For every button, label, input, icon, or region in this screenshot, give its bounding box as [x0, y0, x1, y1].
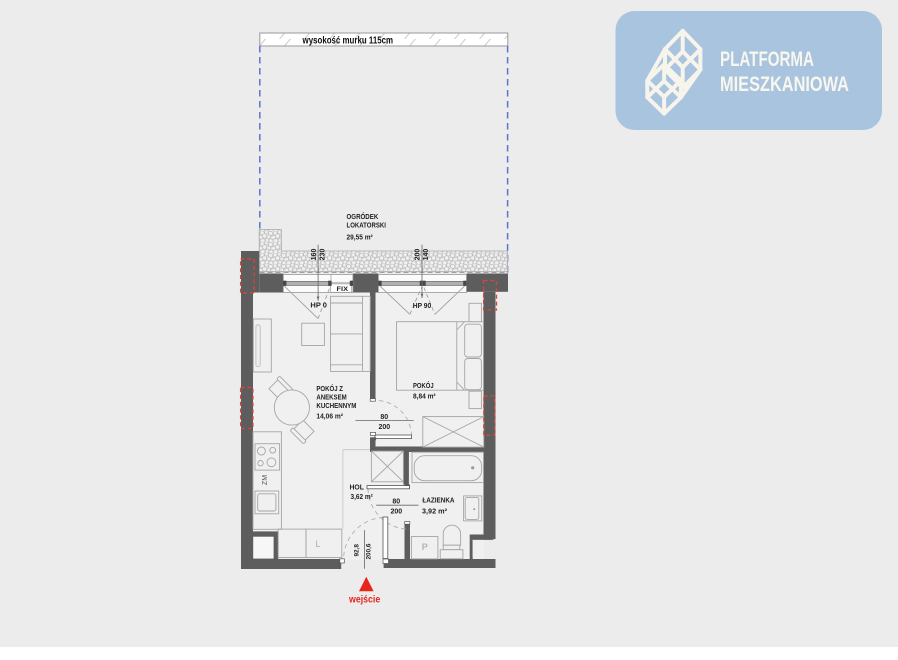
svg-text:29,55 m²: 29,55 m²	[347, 233, 374, 242]
svg-text:14,06 m²: 14,06 m²	[316, 412, 343, 421]
svg-text:wysokość murku 115cm: wysokość murku 115cm	[302, 36, 394, 47]
svg-text:ŁAZIENKA: ŁAZIENKA	[422, 495, 454, 504]
svg-text:230: 230	[319, 249, 326, 261]
svg-text:3,92 m²: 3,92 m²	[422, 507, 448, 516]
svg-text:PLATFORMA: PLATFORMA	[720, 48, 814, 71]
svg-text:OGRÓDEK: OGRÓDEK	[347, 212, 379, 221]
svg-text:200: 200	[415, 249, 422, 261]
svg-text:200: 200	[378, 424, 390, 431]
svg-text:POKÓJ: POKÓJ	[413, 381, 434, 390]
svg-text:3,62 m²: 3,62 m²	[351, 492, 374, 501]
svg-text:wejście: wejście	[348, 595, 380, 606]
svg-text:160: 160	[311, 249, 318, 261]
svg-text:200,6: 200,6	[366, 543, 373, 559]
svg-text:HP 90: HP 90	[413, 303, 431, 310]
svg-text:ZM: ZM	[262, 475, 269, 485]
svg-text:200: 200	[390, 508, 402, 515]
svg-text:80: 80	[380, 414, 388, 421]
svg-text:80: 80	[392, 498, 400, 505]
svg-text:HOL: HOL	[350, 482, 365, 491]
svg-text:8,84 m²: 8,84 m²	[413, 392, 436, 401]
svg-text:KUCHENNYM: KUCHENNYM	[316, 401, 356, 410]
svg-text:LOKATORSKI: LOKATORSKI	[347, 221, 386, 230]
svg-text:L: L	[315, 539, 320, 549]
svg-text:MIESZKANIOWA: MIESZKANIOWA	[720, 73, 849, 96]
svg-text:HP 0: HP 0	[310, 303, 327, 310]
svg-text:FIX: FIX	[337, 286, 349, 293]
svg-text:P: P	[422, 542, 428, 552]
svg-text:92,8: 92,8	[353, 544, 360, 557]
svg-text:140: 140	[423, 249, 430, 261]
